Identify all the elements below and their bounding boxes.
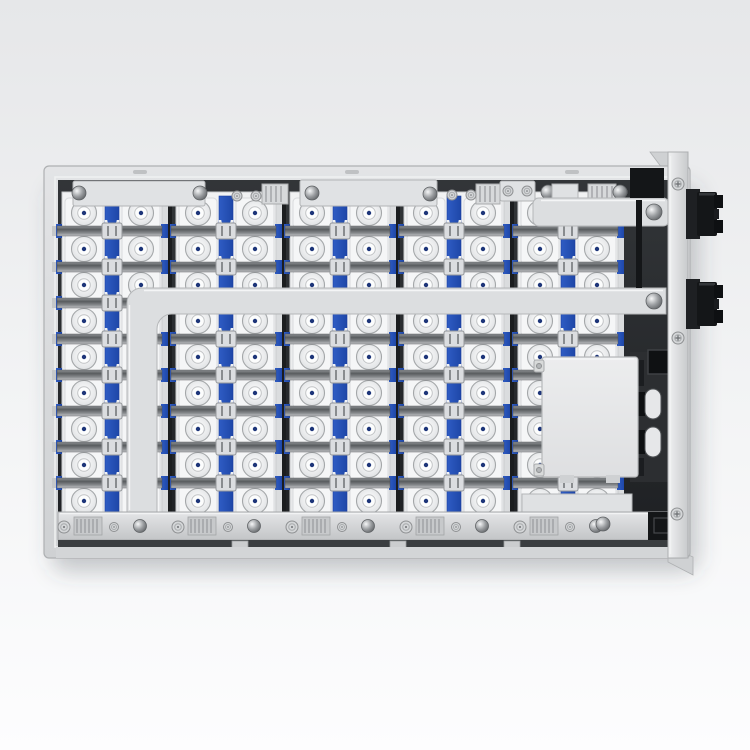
terminal-dot xyxy=(481,427,485,431)
terminal-dot xyxy=(253,391,257,395)
dome-rivet xyxy=(646,293,662,309)
terminal-dot xyxy=(82,211,86,215)
cell-terminal xyxy=(293,414,331,444)
dome-rivet xyxy=(646,204,662,220)
terminal-dot xyxy=(196,247,200,251)
terminal-dot xyxy=(310,427,314,431)
module-edge-strip xyxy=(390,192,396,513)
rail-right-plate xyxy=(522,494,632,514)
terminal-dot xyxy=(595,319,599,323)
terminal-dot xyxy=(481,319,485,323)
terminal-dot xyxy=(253,283,257,287)
screw-head xyxy=(338,523,347,532)
connector-recess xyxy=(714,299,719,309)
terminal-dot xyxy=(367,283,371,287)
busbar-clamp xyxy=(330,223,350,239)
busbar-clamp xyxy=(216,331,236,347)
cell-terminal xyxy=(236,342,274,372)
module-separator xyxy=(510,192,514,513)
busbar-clamp xyxy=(216,367,236,383)
screw-head xyxy=(286,521,298,533)
terminal-dot xyxy=(253,427,257,431)
terminal-dot xyxy=(196,211,200,215)
cell-terminal xyxy=(65,342,103,372)
module-separator xyxy=(168,192,172,513)
terminal-dot xyxy=(481,499,485,503)
terminal-dot xyxy=(253,355,257,359)
module-edge-strip xyxy=(504,192,510,513)
module-edge-strip xyxy=(162,192,168,513)
terminal-dot xyxy=(481,355,485,359)
terminal-dot xyxy=(139,247,143,251)
mounting-bracket-plate xyxy=(73,181,205,206)
connector-tab xyxy=(714,310,723,323)
battery-module-column xyxy=(170,192,286,516)
busbar-clamp xyxy=(444,367,464,383)
cell-terminal xyxy=(179,234,217,264)
terminal-dot xyxy=(82,463,86,467)
terminal-dot xyxy=(367,211,371,215)
terminal-dot xyxy=(424,247,428,251)
busbar-clamp xyxy=(444,331,464,347)
rail-ribbed-section xyxy=(530,517,558,535)
terminal-dot xyxy=(481,283,485,287)
cell-terminal xyxy=(464,414,502,444)
terminal-dot xyxy=(367,499,371,503)
screw-head xyxy=(452,523,461,532)
cell-terminal xyxy=(407,378,445,408)
busbar-clamp xyxy=(444,439,464,455)
terminal-dot xyxy=(538,283,542,287)
terminal-dot xyxy=(139,283,143,287)
busbar-clamp xyxy=(102,403,122,419)
terminal-dot xyxy=(424,355,428,359)
terminal-dot xyxy=(424,463,428,467)
cell-terminal xyxy=(464,234,502,264)
terminal-dot xyxy=(196,463,200,467)
blue-retention-strip xyxy=(105,196,119,513)
terminal-dot xyxy=(253,211,257,215)
junction-box xyxy=(542,357,638,477)
screw-head xyxy=(503,186,513,196)
terminal-dot xyxy=(424,499,428,503)
terminal-dot xyxy=(481,247,485,251)
terminal-dot xyxy=(310,355,314,359)
busbar-clamp xyxy=(216,475,236,491)
screw-head xyxy=(537,468,542,473)
junction-box-slot xyxy=(645,389,661,419)
busbar-clamp xyxy=(330,403,350,419)
cell-terminal xyxy=(236,378,274,408)
busbar-clamp xyxy=(444,259,464,275)
connector-recess xyxy=(714,209,719,219)
terminal-dot xyxy=(424,211,428,215)
rail-ribbed-section xyxy=(74,517,102,535)
cell-terminal xyxy=(464,342,502,372)
screw-head xyxy=(537,364,542,369)
dome-rivet xyxy=(193,186,207,200)
terminal-dot xyxy=(82,247,86,251)
busbar-clamp xyxy=(444,403,464,419)
terminal-dot xyxy=(196,391,200,395)
cell-terminal xyxy=(293,450,331,480)
terminal-dot xyxy=(82,283,86,287)
busbar-clamp xyxy=(102,475,122,491)
dome-rivet xyxy=(305,186,319,200)
blue-retention-strip xyxy=(219,196,233,513)
terminal-dot xyxy=(253,499,257,503)
dome-rivet xyxy=(248,520,261,533)
interior-black-block xyxy=(630,168,664,198)
busbar-clamp xyxy=(216,403,236,419)
battery-pack-render xyxy=(0,0,750,750)
cell-terminal xyxy=(293,342,331,372)
rail-ribbed-section xyxy=(188,517,216,535)
rail-ribbed-section xyxy=(416,517,444,535)
cell-terminal xyxy=(65,414,103,444)
terminal-dot xyxy=(538,355,542,359)
cell-terminal xyxy=(407,414,445,444)
terminal-dot xyxy=(424,391,428,395)
terminal-dot xyxy=(310,211,314,215)
terminal-dot xyxy=(82,499,86,503)
screw-head xyxy=(232,191,242,201)
busbar-clamp xyxy=(102,331,122,347)
junction-box-foot xyxy=(606,475,620,483)
busbar-clamp xyxy=(102,367,122,383)
cell-terminal xyxy=(65,270,103,300)
case-bottom-lip xyxy=(56,547,674,558)
screw-head xyxy=(224,523,233,532)
cell-terminal xyxy=(236,234,274,264)
junction-box-foot xyxy=(560,475,574,483)
screw-head xyxy=(672,178,684,190)
power-connector-bottom xyxy=(686,279,723,329)
cell-terminal xyxy=(236,450,274,480)
busbar-clamp xyxy=(444,223,464,239)
ribbed-clamp xyxy=(262,184,288,204)
terminal-dot xyxy=(310,463,314,467)
busbar-clamp xyxy=(216,439,236,455)
rail-ribbed-section xyxy=(302,517,330,535)
cell-terminal xyxy=(293,234,331,264)
blue-retention-strip xyxy=(333,196,347,513)
cell-terminal xyxy=(179,342,217,372)
terminal-dot xyxy=(82,391,86,395)
cell-terminal xyxy=(293,378,331,408)
busbar-clamp xyxy=(558,331,578,347)
busbar-clamp xyxy=(330,475,350,491)
busbar-clamp xyxy=(216,223,236,239)
screw-head xyxy=(447,190,457,200)
terminal-dot xyxy=(82,427,86,431)
power-connector-top xyxy=(686,189,723,239)
busbar-clamp xyxy=(558,259,578,275)
busbar-clamp xyxy=(102,439,122,455)
ribbed-clamp xyxy=(476,184,500,204)
terminal-dot xyxy=(196,355,200,359)
busbar-clamp xyxy=(102,295,122,311)
cell-terminal xyxy=(578,234,616,264)
module-edge-strip xyxy=(276,192,282,513)
terminal-dot xyxy=(424,319,428,323)
cell-terminal xyxy=(407,342,445,372)
cell-terminal xyxy=(350,378,388,408)
dome-rivet xyxy=(476,520,489,533)
cell-terminal xyxy=(65,450,103,480)
cell-terminal xyxy=(65,306,103,336)
mounting-bracket-plate xyxy=(300,180,437,206)
cell-terminal xyxy=(464,378,502,408)
terminal-dot xyxy=(367,247,371,251)
terminal-dot xyxy=(481,391,485,395)
terminal-dot xyxy=(82,355,86,359)
cell-terminal xyxy=(122,234,160,264)
busbar-clamp xyxy=(444,475,464,491)
terminal-dot xyxy=(538,319,542,323)
cell-terminal xyxy=(179,414,217,444)
screw-head xyxy=(566,523,575,532)
terminal-dot xyxy=(481,211,485,215)
terminal-dot xyxy=(595,283,599,287)
interior-black-block xyxy=(636,200,642,288)
terminal-dot xyxy=(253,463,257,467)
busbar-clamp xyxy=(216,259,236,275)
cell-terminal xyxy=(179,450,217,480)
cell-terminal xyxy=(407,450,445,480)
screw-head xyxy=(110,523,119,532)
dome-rivet xyxy=(613,185,627,199)
cell-terminal xyxy=(350,414,388,444)
terminal-dot xyxy=(196,283,200,287)
screw-head xyxy=(466,190,476,200)
dome-rivet xyxy=(596,517,610,531)
terminal-dot xyxy=(196,319,200,323)
screw-head xyxy=(672,332,684,344)
battery-module-column xyxy=(284,192,400,516)
terminal-dot xyxy=(196,499,200,503)
screw-head xyxy=(400,521,412,533)
case-lip-slot xyxy=(133,170,147,174)
cell-terminal xyxy=(464,450,502,480)
connector-tab xyxy=(714,195,723,208)
busbar-clamp xyxy=(330,259,350,275)
terminal-dot xyxy=(424,427,428,431)
screw-head xyxy=(251,191,261,201)
cell-terminal xyxy=(65,378,103,408)
terminal-dot xyxy=(310,319,314,323)
busbar-clamp xyxy=(330,331,350,347)
terminal-dot xyxy=(196,427,200,431)
terminal-dot xyxy=(367,427,371,431)
cell-terminal xyxy=(65,234,103,264)
screw-head xyxy=(671,508,683,520)
terminal-dot xyxy=(424,283,428,287)
connector-tab xyxy=(714,285,723,298)
battery-pack-photo xyxy=(0,0,750,750)
terminal-dot xyxy=(310,283,314,287)
connector-highlight xyxy=(699,283,715,286)
case-lip-slot xyxy=(345,170,359,174)
module-separator xyxy=(282,192,286,513)
dome-rivet xyxy=(72,186,86,200)
screw-head xyxy=(58,521,70,533)
terminal-dot xyxy=(481,463,485,467)
cell-terminal xyxy=(350,234,388,264)
terminal-dot xyxy=(253,247,257,251)
cell-terminal xyxy=(179,378,217,408)
case-lip-slot xyxy=(565,170,579,174)
terminal-dot xyxy=(367,463,371,467)
cell-terminal xyxy=(236,414,274,444)
terminal-dot xyxy=(253,319,257,323)
battery-module-column xyxy=(398,192,514,516)
terminal-dot xyxy=(310,391,314,395)
connector-tab xyxy=(714,220,723,233)
side-flange xyxy=(668,152,688,558)
screw-head xyxy=(172,521,184,533)
module-separator xyxy=(396,192,400,513)
terminal-dot xyxy=(310,247,314,251)
screw-head xyxy=(514,521,526,533)
cell-terminal xyxy=(407,234,445,264)
terminal-dot xyxy=(82,319,86,323)
dome-rivet xyxy=(134,520,147,533)
terminal-dot xyxy=(538,247,542,251)
busbar-clamp xyxy=(102,259,122,275)
blue-retention-strip xyxy=(447,196,461,513)
terminal-dot xyxy=(367,319,371,323)
terminal-dot xyxy=(595,247,599,251)
terminal-dot xyxy=(367,355,371,359)
connector-highlight xyxy=(699,193,715,196)
cell-terminal xyxy=(350,342,388,372)
busbar-clamp xyxy=(330,439,350,455)
terminal-dot xyxy=(367,391,371,395)
junction-box-assembly xyxy=(534,350,672,483)
screw-head xyxy=(522,186,532,196)
cell-terminal xyxy=(521,234,559,264)
junction-box-slot xyxy=(645,427,661,457)
dome-rivet xyxy=(423,187,437,201)
dome-rivet xyxy=(362,520,375,533)
busbar-clamp xyxy=(102,223,122,239)
rail-shadow-gap xyxy=(58,540,668,547)
terminal-dot xyxy=(310,499,314,503)
terminal-dot xyxy=(139,211,143,215)
busbar-clamp xyxy=(330,367,350,383)
cell-terminal xyxy=(350,450,388,480)
